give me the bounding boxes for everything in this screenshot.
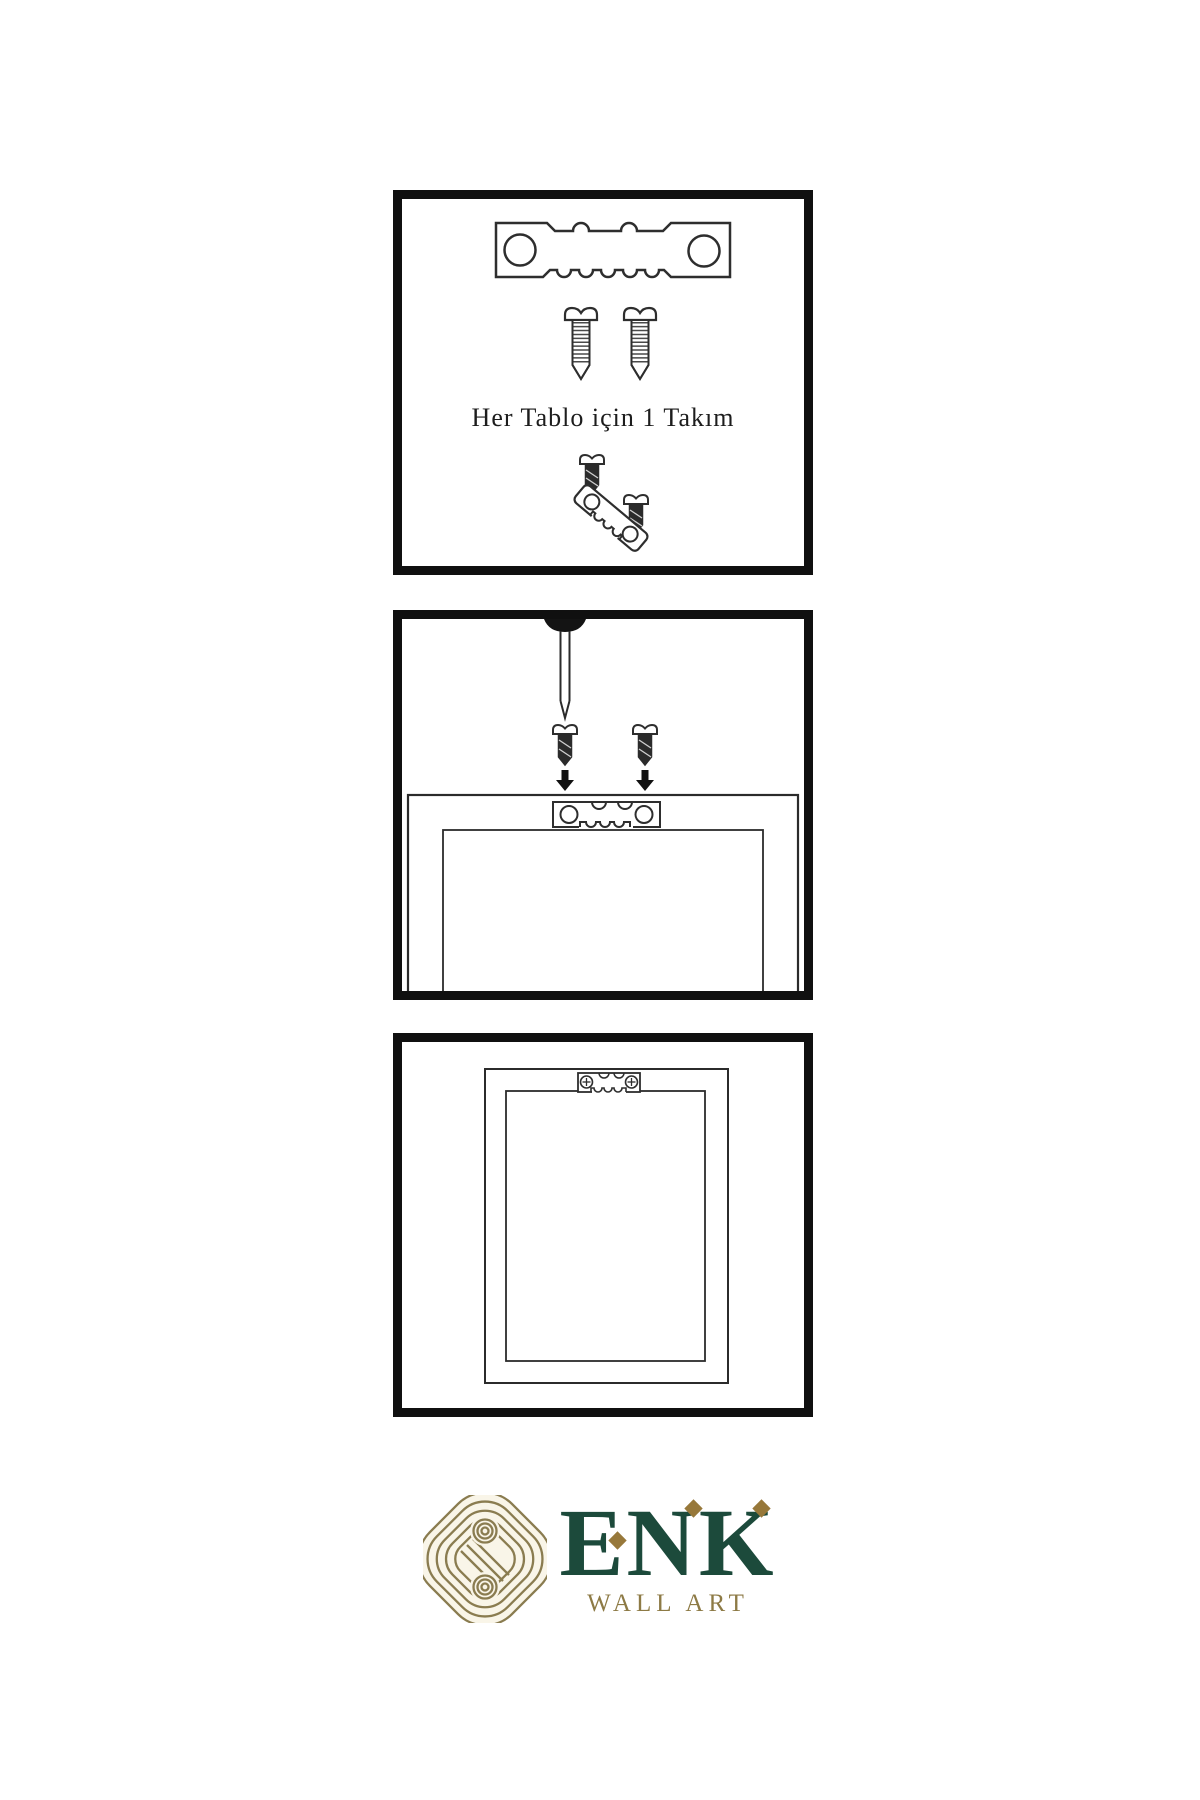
dark-screw-icon bbox=[633, 725, 657, 765]
sawtooth-hanger-icon bbox=[553, 802, 660, 829]
hardware-kit-illustration bbox=[402, 199, 804, 566]
arrow-down-icon bbox=[556, 770, 574, 791]
brand-text: ENK WALL ART bbox=[559, 1500, 776, 1618]
frame-back-icon bbox=[485, 1069, 728, 1383]
sawtooth-hanger-icon bbox=[496, 223, 730, 277]
brand-name: ENK bbox=[559, 1489, 776, 1596]
arrow-down-icon bbox=[636, 770, 654, 791]
screw-icon bbox=[624, 308, 656, 379]
panel-hardware-kit: Her Tablo için 1 Takım bbox=[393, 190, 813, 575]
hang-frame-illustration bbox=[402, 1042, 804, 1408]
kit-caption: Her Tablo için 1 Takım bbox=[402, 403, 804, 433]
installed-hanger-icon bbox=[578, 1073, 640, 1094]
brand-name-box: ENK bbox=[559, 1500, 776, 1586]
mount-hanger-illustration bbox=[402, 619, 804, 991]
knot-logo-icon bbox=[423, 1495, 547, 1623]
dark-screw-icon bbox=[553, 725, 577, 765]
panel-hang-frame bbox=[393, 1033, 813, 1417]
screw-icon bbox=[565, 308, 597, 379]
wall-nail-icon bbox=[544, 619, 586, 718]
brand-logo: ENK WALL ART bbox=[0, 1495, 1200, 1623]
instruction-sheet: Her Tablo için 1 Takım bbox=[0, 0, 1200, 1800]
panel-mount-hanger bbox=[393, 610, 813, 1000]
